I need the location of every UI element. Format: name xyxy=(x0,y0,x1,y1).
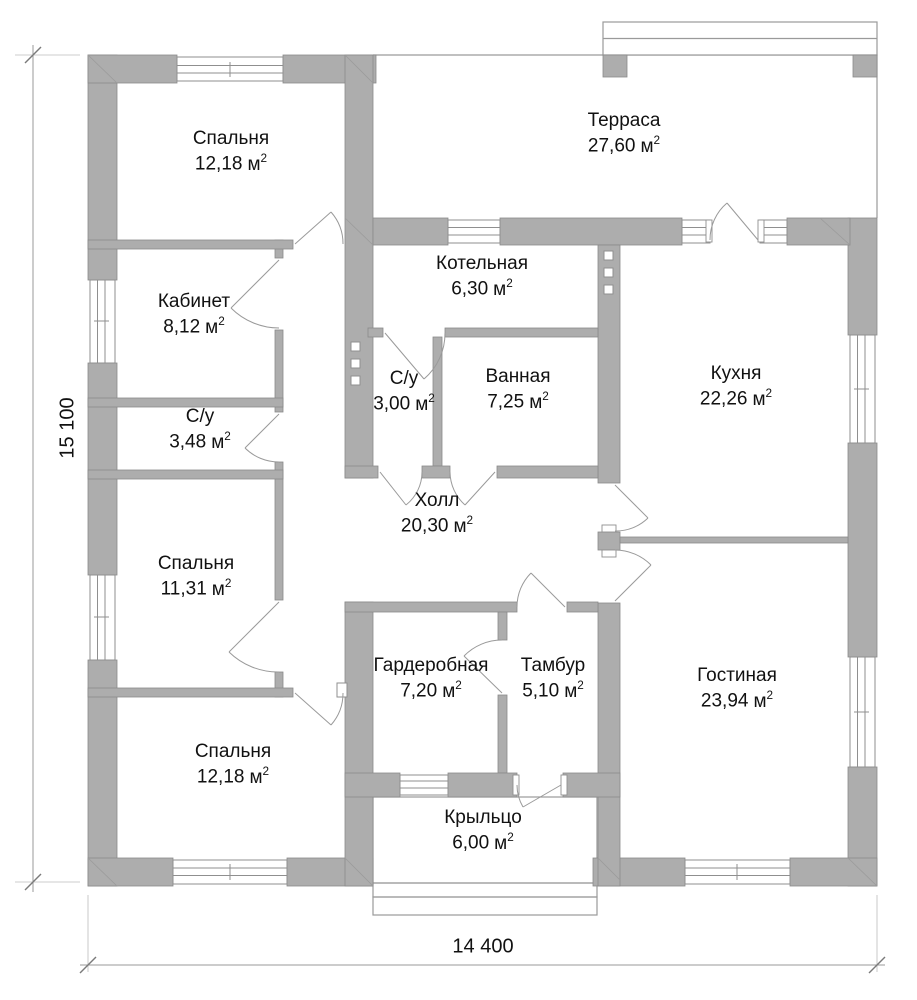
room-label-boiler-room: Котельная 6,30м2 xyxy=(436,252,528,302)
room-label-bedroom-mid-left: Спальня 11,31м2 xyxy=(158,552,234,602)
room-area: 5,10м2 xyxy=(521,678,586,704)
room-label-hall: Холл 20,30м2 xyxy=(401,489,473,539)
room-name: Терраса xyxy=(588,109,661,133)
room-area: 7,25м2 xyxy=(485,389,550,415)
room-label-living-room: Гостиная 23,94м2 xyxy=(697,664,777,714)
room-name: Спальня xyxy=(193,127,269,151)
room-label-vestibule: Тамбур 5,10м2 xyxy=(521,654,586,704)
room-label-wc-left: С/у 3,48м2 xyxy=(169,405,231,455)
dimension-width-label: 14 400 xyxy=(452,936,513,959)
room-area: 27,60м2 xyxy=(588,133,661,159)
room-area: 22,26м2 xyxy=(700,386,772,412)
room-name: Гостиная xyxy=(697,664,777,688)
room-area: 3,00м2 xyxy=(373,391,435,417)
room-label-bedroom-top-left: Спальня 12,18м2 xyxy=(193,127,269,177)
room-name: Котельная xyxy=(436,252,528,276)
room-name: С/у xyxy=(169,405,231,429)
room-name: Спальня xyxy=(195,740,271,764)
room-name: Ванная xyxy=(485,365,550,389)
room-name: Спальня xyxy=(158,552,234,576)
room-area: 12,18м2 xyxy=(193,151,269,177)
room-label-wc-small: С/у 3,00м2 xyxy=(373,367,435,417)
room-area: 20,30м2 xyxy=(401,513,473,539)
room-label-bathroom: Ванная 7,25м2 xyxy=(485,365,550,415)
room-area: 11,31м2 xyxy=(158,576,234,602)
room-area: 7,20м2 xyxy=(374,678,489,704)
room-area: 23,94м2 xyxy=(697,688,777,714)
room-label-kitchen: Кухня 22,26м2 xyxy=(700,362,772,412)
room-label-wardrobe: Гардеробная 7,20м2 xyxy=(374,654,489,704)
room-name: Кабинет xyxy=(158,290,230,314)
floor-plan-page: Спальня 12,18м2 Терраса 27,60м2 Кабинет … xyxy=(0,0,917,1000)
room-label-porch: Крыльцо 6,00м2 xyxy=(444,806,522,856)
terrace-steps xyxy=(603,22,877,55)
room-area: 12,18м2 xyxy=(195,764,271,790)
room-area: 3,48м2 xyxy=(169,429,231,455)
room-name: Холл xyxy=(401,489,473,513)
room-name: Тамбур xyxy=(521,654,586,678)
room-area: 6,00м2 xyxy=(444,830,522,856)
room-name: Крыльцо xyxy=(444,806,522,830)
room-area: 6,30м2 xyxy=(436,276,528,302)
room-name: Кухня xyxy=(700,362,772,386)
room-name: Гардеробная xyxy=(374,654,489,678)
room-label-bedroom-bot-left: Спальня 12,18м2 xyxy=(195,740,271,790)
room-label-study: Кабинет 8,12м2 xyxy=(158,290,230,340)
room-area: 8,12м2 xyxy=(158,314,230,340)
dimension-height-label: 15 100 xyxy=(57,397,80,458)
room-name: С/у xyxy=(373,367,435,391)
room-label-terrace: Терраса 27,60м2 xyxy=(588,109,661,159)
